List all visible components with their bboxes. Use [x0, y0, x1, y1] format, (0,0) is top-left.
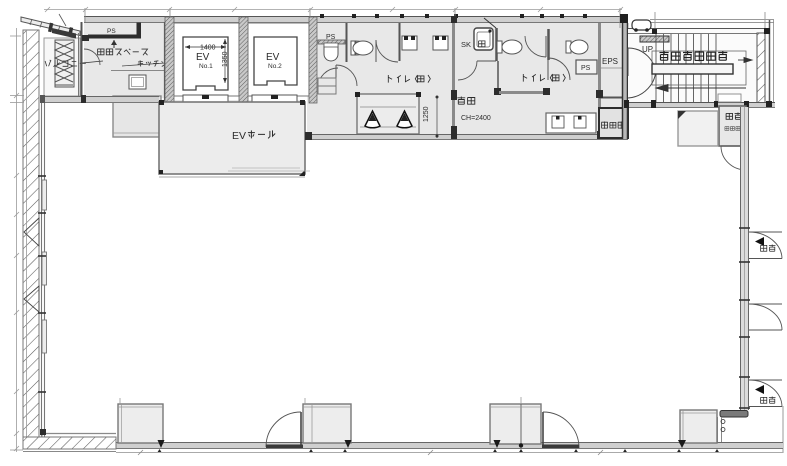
svg-text:PS: PS: [581, 65, 591, 72]
svg-text:1250: 1250: [423, 106, 430, 122]
svg-text:No.2: No.2: [268, 63, 282, 70]
svg-text:EPS: EPS: [602, 57, 618, 66]
svg-text:PS: PS: [107, 28, 116, 35]
svg-text:EV: EV: [232, 130, 246, 142]
svg-text:SK: SK: [461, 40, 471, 49]
svg-text:EV: EV: [196, 52, 210, 63]
svg-text:1350: 1350: [222, 51, 229, 67]
svg-text:CH=2400: CH=2400: [461, 115, 491, 122]
svg-text:No.1: No.1: [199, 63, 213, 70]
svg-text:UP: UP: [642, 45, 653, 54]
svg-text:EV: EV: [266, 52, 280, 63]
svg-text:1400: 1400: [200, 45, 216, 52]
